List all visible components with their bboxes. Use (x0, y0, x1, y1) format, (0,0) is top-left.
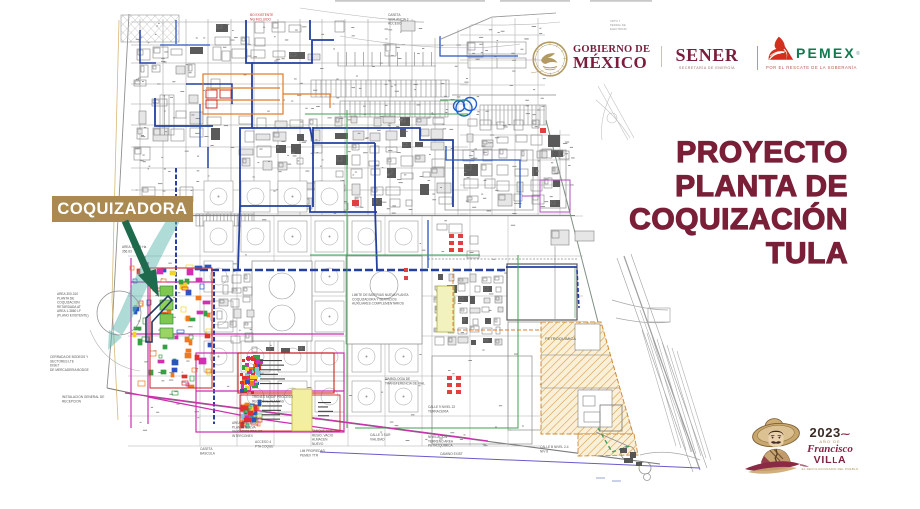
svg-text:ELECTRICID: ELECTRICID (610, 27, 627, 31)
svg-text:PETROQUIMICA: PETROQUIMICA (545, 336, 576, 341)
svg-text:AUXILIARES COMPLEMENTARIOS: AUXILIARES COMPLEMENTARIOS (352, 302, 404, 306)
svg-text:NO INCLUIDO: NO INCLUIDO (250, 17, 271, 21)
svg-text:CAMINO EXIST: CAMINO EXIST (440, 452, 463, 456)
svg-text:PEMEX TTR: PEMEX TTR (300, 453, 319, 457)
svg-text:(PLANO EXISTENTE): (PLANO EXISTENTE) (57, 314, 89, 318)
svg-text:NIV 8: NIV 8 (540, 449, 548, 453)
svg-text:TERRACERIA: TERRACERIA (428, 409, 449, 413)
svg-text:BASCULA: BASCULA (200, 451, 216, 455)
svg-text:VIALIDAD: VIALIDAD (370, 437, 385, 441)
svg-text:ACCESO: ACCESO (388, 22, 402, 26)
svg-text:PETROQUIMICA: PETROQUIMICA (428, 444, 453, 448)
svg-text:DE MERCADERIA BODGE: DE MERCADERIA BODGE (50, 368, 89, 372)
svg-text:INTERCONEX: INTERCONEX (232, 434, 254, 438)
svg-text:RECONFIG PLANTAS: RECONFIG PLANTAS (252, 399, 284, 403)
svg-text:RECEPCION: RECEPCION (62, 399, 82, 403)
svg-text:NUEVO: NUEVO (312, 442, 324, 446)
svg-text:TRANSFERENCIA DE VIAL: TRANSFERENCIA DE VIAL (385, 381, 425, 385)
svg-text:PTA COQUE: PTA COQUE (255, 444, 273, 448)
